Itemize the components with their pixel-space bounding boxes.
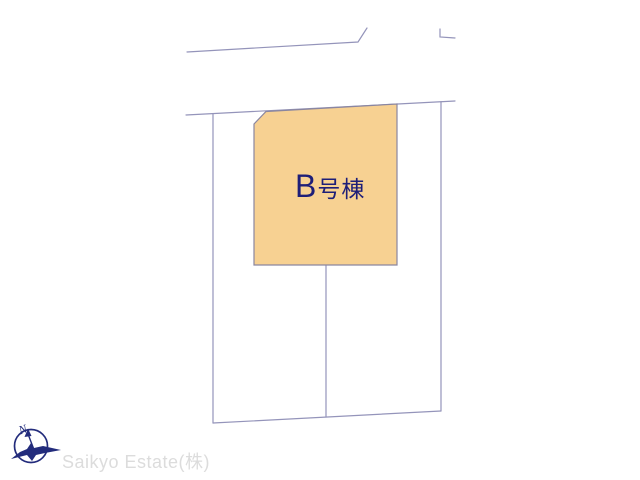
compass-group: N xyxy=(11,421,61,462)
parcel-bottom-boundary-line xyxy=(213,411,441,423)
road-edge-upper-line xyxy=(187,28,367,52)
site-plan-page: B号棟 N Saikyo Estate(株) xyxy=(0,0,640,480)
compass-north-icon: N xyxy=(6,418,70,474)
site-plan-drawing xyxy=(0,0,640,480)
company-watermark: Saikyo Estate(株) xyxy=(62,448,210,474)
road-corner-mark-line xyxy=(440,29,455,38)
plot-b-label: B号棟 xyxy=(295,166,365,206)
compass-bird-shape xyxy=(11,443,61,461)
